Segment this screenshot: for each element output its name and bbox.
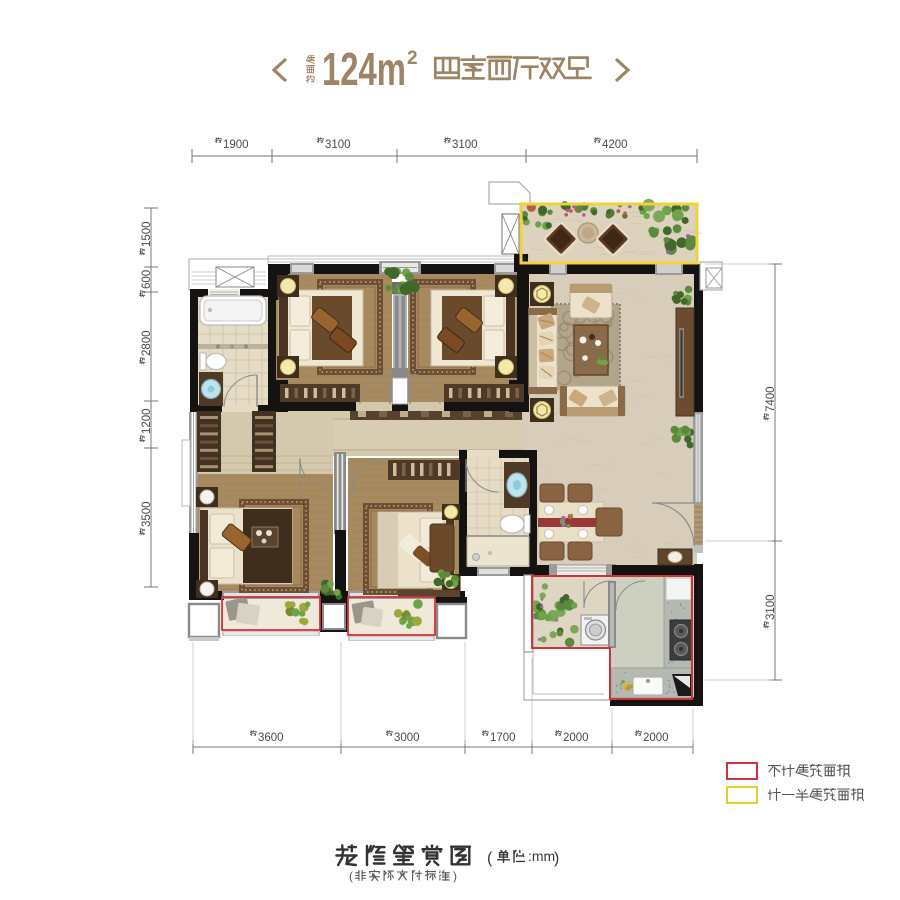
svg-text:3100: 3100	[765, 594, 777, 620]
svg-text:1200: 1200	[141, 408, 153, 434]
svg-text:600: 600	[141, 270, 153, 289]
svg-text:(: (	[349, 869, 353, 883]
svg-text:): )	[453, 869, 457, 883]
svg-text:1700: 1700	[490, 732, 516, 744]
svg-text::mm: :mm	[528, 848, 555, 864]
svg-text:124m: 124m	[322, 43, 406, 95]
svg-text:4200: 4200	[602, 139, 628, 151]
svg-text:2000: 2000	[563, 732, 589, 744]
svg-text:2: 2	[407, 48, 418, 69]
svg-text:(: (	[487, 850, 493, 867]
svg-text:2000: 2000	[643, 732, 669, 744]
svg-text:3500: 3500	[141, 501, 153, 527]
svg-text:3000: 3000	[394, 732, 420, 744]
svg-text:3600: 3600	[258, 732, 284, 744]
svg-text:2800: 2800	[141, 330, 153, 356]
svg-text:3100: 3100	[452, 139, 478, 151]
svg-text:1500: 1500	[141, 221, 153, 247]
svg-text:1900: 1900	[223, 139, 249, 151]
svg-text:): )	[554, 850, 559, 867]
svg-text:7400: 7400	[765, 386, 777, 412]
svg-text:3100: 3100	[325, 139, 351, 151]
